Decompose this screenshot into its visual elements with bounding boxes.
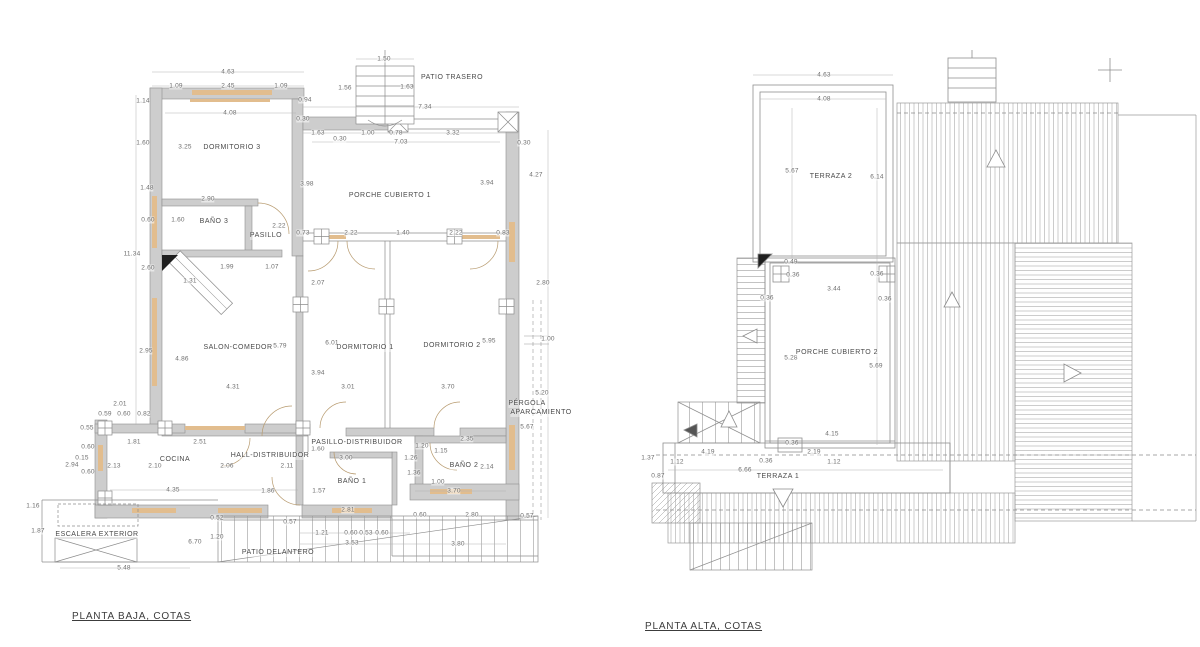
- dimension-label: 3.53: [345, 540, 358, 547]
- dimension-label: 0.60: [81, 444, 94, 451]
- dimension-label: 6.14: [870, 174, 883, 181]
- dimension-label: 1.56: [338, 85, 351, 92]
- dimension-label: 4.15: [825, 431, 838, 438]
- dimension-label: 0.30: [517, 140, 530, 147]
- dimension-label: 1.63: [400, 84, 413, 91]
- dimension-label: 0.60: [141, 217, 154, 224]
- dimension-label: 2.01: [113, 401, 126, 408]
- room-label: DORMITORIO 2: [423, 342, 480, 350]
- dimension-label: 0.36: [785, 440, 798, 447]
- room-label: BAÑO 1: [338, 478, 367, 486]
- dimension-label: 0.82: [137, 411, 150, 418]
- dimension-label: 1.15: [434, 448, 447, 455]
- dimension-label: 4.31: [226, 384, 239, 391]
- dimension-label: 1.99: [220, 264, 233, 271]
- dimension-label: 1.26: [404, 455, 417, 462]
- dimension-label: 1.37: [641, 455, 654, 462]
- room-label: PASILLO-DISTRIBUIDOR: [311, 439, 402, 447]
- dimension-label: 2.45: [221, 83, 234, 90]
- dimension-label: 5.95: [482, 338, 495, 345]
- dimension-label: 2.11: [281, 463, 294, 470]
- dimension-label: 0.83: [496, 230, 509, 237]
- dimension-label: 1.48: [140, 185, 153, 192]
- room-label: PORCHE CUBIERTO 2: [796, 349, 878, 357]
- floorplan-graphics: [0, 0, 1200, 647]
- dimension-label: 1.86: [261, 488, 274, 495]
- dimension-label: 0.94: [298, 97, 311, 104]
- dimension-label: 0.36: [870, 271, 883, 278]
- dimension-label: 2.06: [220, 463, 233, 470]
- dimension-label: 0.36: [786, 272, 799, 279]
- dimension-label: 3.94: [480, 180, 493, 187]
- dimension-label: 0.55: [80, 425, 93, 432]
- dimension-label: 0.78: [389, 130, 402, 137]
- dimension-label: 0.60: [344, 530, 357, 537]
- room-label: TERRAZA 2: [810, 173, 853, 181]
- dimension-label: 1.40: [396, 230, 409, 237]
- dimension-label: 3.70: [447, 488, 460, 495]
- dimension-label: 0.30: [296, 116, 309, 123]
- dimension-label: 3.70: [441, 384, 454, 391]
- room-label: ESCALERA EXTERIOR: [55, 531, 138, 539]
- dimension-label: 0.57: [283, 519, 296, 526]
- blueprint-canvas: 4.631.092.451.091.144.081.603.251.501.56…: [0, 0, 1200, 647]
- dimension-label: 4.08: [223, 110, 236, 117]
- room-label: PATIO DELANTERO: [242, 549, 314, 557]
- dimension-label: 1.12: [827, 459, 840, 466]
- dimension-label: 0.36: [878, 296, 891, 303]
- dimension-label: 4.35: [166, 487, 179, 494]
- room-label: PASILLO: [250, 232, 282, 240]
- dimension-label: 3.01: [341, 384, 354, 391]
- dimension-label: 2.60: [141, 265, 154, 272]
- right-plan-title: PLANTA ALTA, COTAS: [645, 621, 762, 632]
- dimension-label: 1.00: [541, 336, 554, 343]
- dimension-label: 1.00: [431, 479, 444, 486]
- dimension-label: 2.35: [460, 436, 473, 443]
- dimension-label: 7.34: [418, 104, 431, 111]
- dimension-label: 1.87: [31, 528, 44, 535]
- dimension-label: 1.20: [415, 443, 428, 450]
- dimension-label: 4.63: [221, 69, 234, 76]
- dimension-label: 0.30: [333, 136, 346, 143]
- dimension-label: 6.66: [738, 467, 751, 474]
- dimension-label: 1.07: [265, 264, 278, 271]
- dimension-label: 5.79: [273, 343, 286, 350]
- dimension-label: 2.13: [107, 463, 120, 470]
- dimension-label: 1.21: [315, 530, 328, 537]
- dimension-label: 5.67: [520, 424, 533, 431]
- dimension-label: 0.59: [98, 411, 111, 418]
- dimension-label: 2.80: [465, 512, 478, 519]
- dimension-label: 2.22: [272, 223, 285, 230]
- dimension-label: 0.49: [784, 259, 797, 266]
- dimension-label: 0.15: [75, 455, 88, 462]
- dimension-label: 3.98: [300, 181, 313, 188]
- room-label: APARCAMIENTO: [510, 409, 571, 417]
- dimension-label: 3.44: [827, 286, 840, 293]
- dimension-label: 1.31: [183, 278, 196, 285]
- right-plan-stairs: [652, 258, 812, 570]
- dimension-label: 2.94: [65, 462, 78, 469]
- dimension-label: 0.53: [359, 530, 372, 537]
- room-label: COCINA: [160, 456, 190, 464]
- dimension-label: 0.73: [296, 230, 309, 237]
- dimension-label: 0.36: [759, 458, 772, 465]
- dimension-label: 2.22: [344, 230, 357, 237]
- left-plan-title: PLANTA BAJA, COTAS: [72, 611, 191, 622]
- room-label: PÉRGOLA: [508, 400, 545, 408]
- room-label: DORMITORIO 1: [336, 344, 393, 352]
- dimension-label: 1.60: [136, 140, 149, 147]
- dimension-label: 3.80: [451, 541, 464, 548]
- dimension-label: 0.57: [520, 513, 533, 520]
- dimension-label: 0.60: [375, 530, 388, 537]
- dimension-label: 0.60: [81, 469, 94, 476]
- dimension-label: 2.90: [201, 196, 214, 203]
- dimension-label: 2.07: [311, 280, 324, 287]
- dimension-label: 5.48: [117, 565, 130, 572]
- dimension-label: 3.94: [311, 370, 324, 377]
- dimension-label: 2.81: [341, 507, 354, 514]
- dimension-label: 5.20: [535, 390, 548, 397]
- dimension-label: 1.63: [311, 130, 324, 137]
- dimension-label: 1.60: [171, 217, 184, 224]
- left-plan-fireplace: [162, 251, 233, 315]
- room-label: TERRAZA 1: [757, 473, 800, 481]
- dimension-label: 2.95: [139, 348, 152, 355]
- room-label: PORCHE CUBIERTO 1: [349, 192, 431, 200]
- dimension-label: 0.60: [413, 512, 426, 519]
- dimension-label: 5.67: [785, 168, 798, 175]
- dimension-label: 0.60: [117, 411, 130, 418]
- room-label: BAÑO 3: [200, 218, 229, 226]
- dimension-label: 4.19: [701, 449, 714, 456]
- room-label: DORMITORIO 3: [203, 144, 260, 152]
- room-label: PATIO TRASERO: [421, 74, 483, 82]
- dimension-label: 3.25: [178, 144, 191, 151]
- dimension-label: 4.27: [529, 172, 542, 179]
- dimension-label: 0.87: [651, 473, 664, 480]
- dimension-label: 11.34: [124, 251, 141, 258]
- dimension-label: 4.63: [817, 72, 830, 79]
- room-label: HALL-DISTRIBUIDOR: [231, 452, 310, 460]
- room-label: SALON-COMEDOR: [203, 344, 272, 352]
- dimension-label: 4.86: [175, 356, 188, 363]
- dimension-label: 2.19: [807, 449, 820, 456]
- dimension-label: 5.69: [869, 363, 882, 370]
- dimension-label: 0.52: [210, 515, 223, 522]
- dimension-label: 1.50: [377, 56, 390, 63]
- dimension-label: 1.00: [361, 130, 374, 137]
- dimension-label: 6.70: [188, 539, 201, 546]
- dimension-label: 1.14: [136, 98, 149, 105]
- dimension-label: 1.09: [274, 83, 287, 90]
- dimension-label: 7.03: [394, 139, 407, 146]
- dimension-label: 1.16: [26, 503, 39, 510]
- dimension-label: 4.08: [817, 96, 830, 103]
- dimension-label: 1.12: [670, 459, 683, 466]
- dimension-label: 1.20: [210, 534, 223, 541]
- dimension-label: 1.36: [407, 470, 420, 477]
- room-label: BAÑO 2: [450, 462, 479, 470]
- dimension-label: 1.81: [127, 439, 140, 446]
- dimension-label: 2.80: [536, 280, 549, 287]
- dimension-label: 2.51: [193, 439, 206, 446]
- dimension-label: 3.32: [446, 130, 459, 137]
- dimension-label: 1.09: [169, 83, 182, 90]
- dimension-label: 1.57: [312, 488, 325, 495]
- dimension-label: 2.14: [480, 464, 493, 471]
- dimension-label: 3.00: [339, 455, 352, 462]
- dimension-label: 2.22: [449, 230, 462, 237]
- dimension-label: 0.36: [760, 295, 773, 302]
